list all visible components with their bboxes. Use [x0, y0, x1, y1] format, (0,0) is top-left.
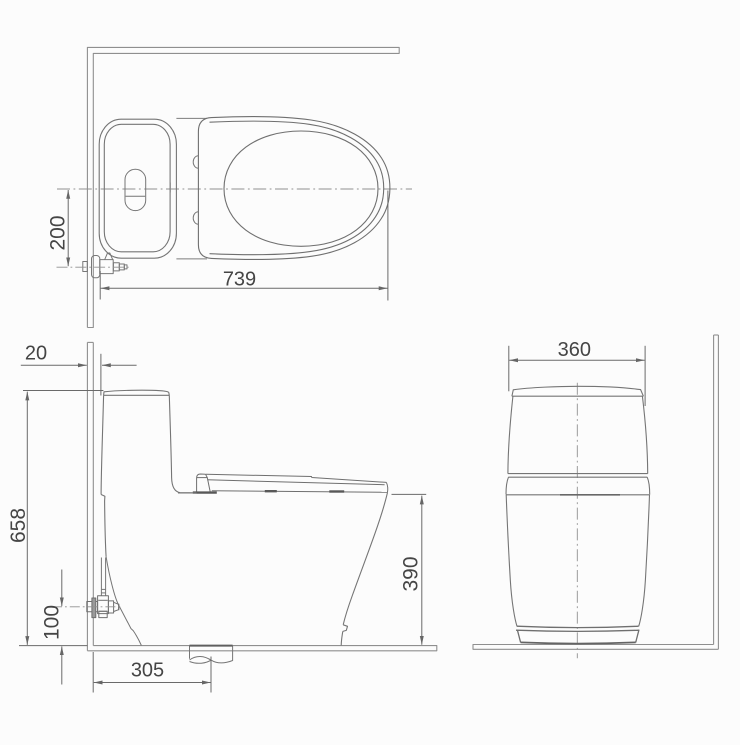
- svg-text:100: 100: [41, 605, 64, 640]
- svg-text:658: 658: [7, 508, 30, 543]
- svg-text:360: 360: [558, 339, 591, 361]
- svg-text:739: 739: [223, 268, 256, 290]
- svg-text:200: 200: [47, 215, 70, 250]
- svg-text:20: 20: [25, 343, 47, 365]
- svg-text:305: 305: [131, 660, 164, 682]
- svg-text:390: 390: [400, 556, 423, 591]
